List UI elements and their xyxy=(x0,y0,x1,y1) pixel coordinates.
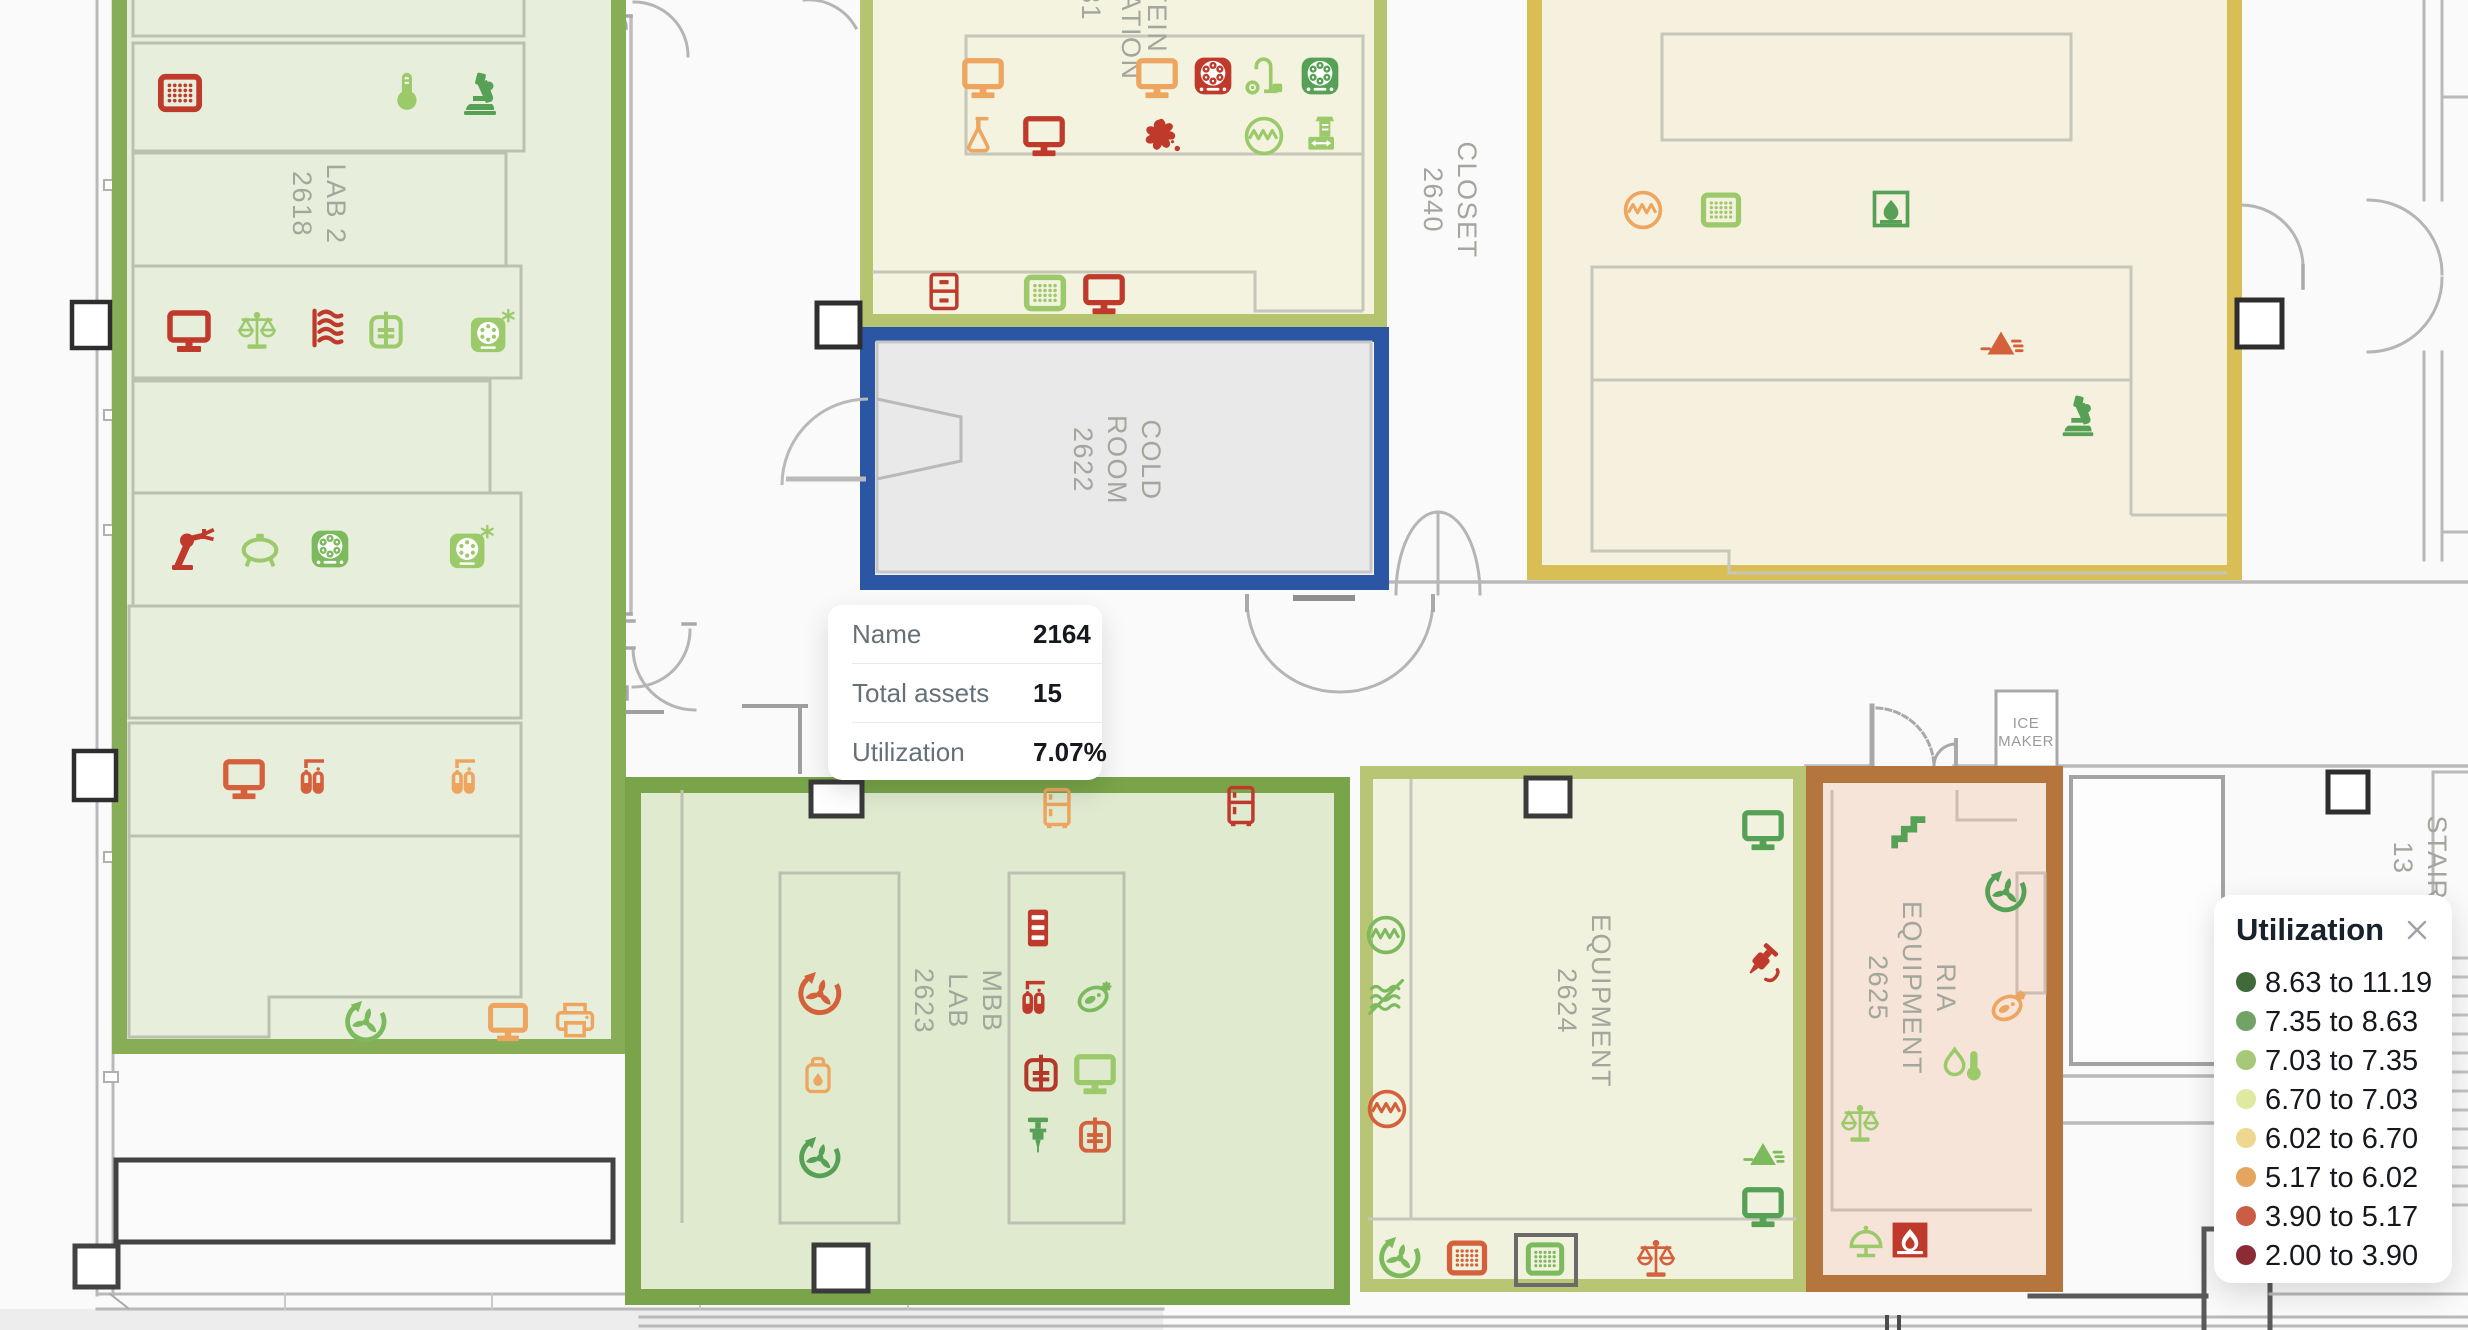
svg-text:COLDROOM2622: COLDROOM2622 xyxy=(1068,415,1166,505)
svg-text:MBBLAB2623: MBBLAB2623 xyxy=(909,968,1007,1034)
